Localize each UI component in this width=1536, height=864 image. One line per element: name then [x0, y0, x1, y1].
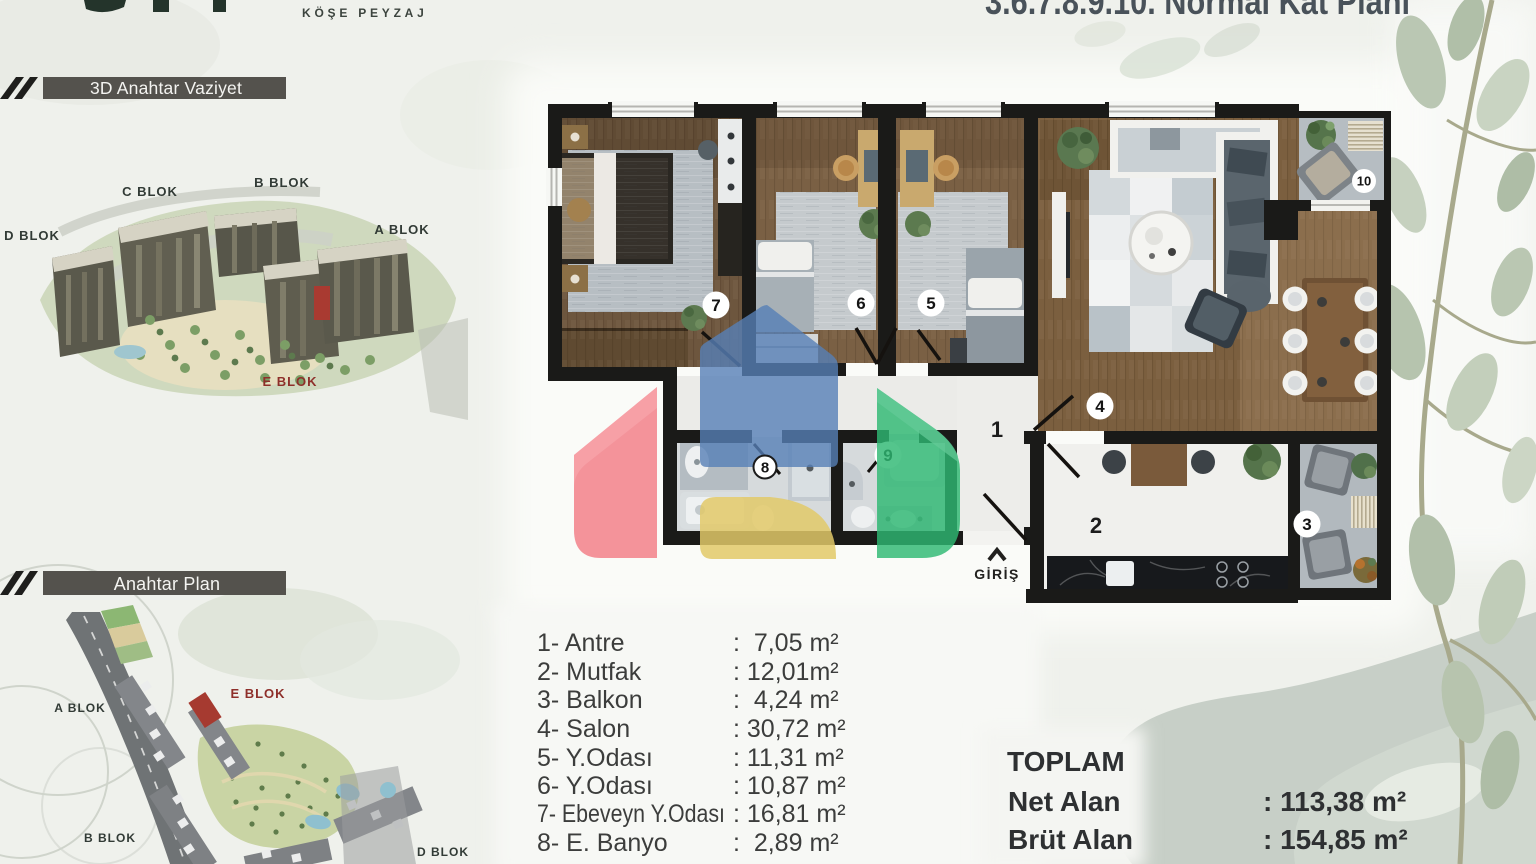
svg-text:B BLOK: B BLOK: [84, 831, 136, 845]
svg-text:C BLOK: C BLOK: [122, 184, 178, 199]
svg-text:B BLOK: B BLOK: [254, 175, 310, 190]
svg-text:7- Ebeveyn Y.Odası: 7- Ebeveyn Y.Odası: [537, 800, 725, 828]
svg-text:4: 4: [1095, 397, 1105, 416]
svg-text:TOPLAM: TOPLAM: [1007, 746, 1125, 777]
svg-text:1: 1: [991, 417, 1003, 442]
svg-text:: 4,50 m²: : 4,50 m²: [733, 860, 839, 864]
svg-text:9- Banyo: 9- Banyo: [537, 860, 637, 864]
svg-text:: 7,05 m²: : 7,05 m²: [733, 629, 839, 657]
svg-text:: 16,81 m²: : 16,81 m²: [733, 800, 846, 828]
svg-text:2: 2: [1090, 513, 1102, 538]
svg-text:8- E. Banyo: 8- E. Banyo: [537, 829, 668, 857]
svg-text:3: 3: [1302, 515, 1311, 534]
svg-text:E BLOK: E BLOK: [230, 686, 285, 701]
svg-text:2- Mutfak: 2- Mutfak: [537, 658, 642, 686]
svg-text:A BLOK: A BLOK: [374, 222, 429, 237]
svg-text:4- Salon: 4- Salon: [537, 715, 630, 743]
svg-text:3- Balkon: 3- Balkon: [537, 686, 643, 714]
svg-text:GİRİŞ: GİRİŞ: [974, 566, 1020, 582]
svg-text:7: 7: [711, 296, 720, 315]
svg-text:: 12,01m²: : 12,01m²: [733, 658, 839, 686]
svg-text:1- Antre: 1- Antre: [537, 629, 625, 657]
svg-text:D BLOK: D BLOK: [4, 228, 60, 243]
svg-text:: 154,85 m²: : 154,85 m²: [1263, 824, 1408, 855]
svg-text:: 4,24 m²: : 4,24 m²: [733, 686, 839, 714]
svg-text:10: 10: [1357, 174, 1371, 189]
svg-text:3.6.7.8.9.10. Normal Kat Planı: 3.6.7.8.9.10. Normal Kat Planı: [985, 0, 1410, 22]
svg-text:: 2,89 m²: : 2,89 m²: [733, 829, 839, 857]
svg-text:: 11,31 m²: : 11,31 m²: [733, 744, 844, 772]
svg-text:E BLOK: E BLOK: [262, 374, 317, 389]
svg-text:: 113,38 m²: : 113,38 m²: [1263, 786, 1406, 817]
svg-text:Net Alan: Net Alan: [1008, 786, 1121, 817]
svg-text:6- Y.Odası: 6- Y.Odası: [537, 772, 653, 800]
svg-text:8: 8: [761, 460, 769, 477]
svg-text:: 30,72 m²: : 30,72 m²: [733, 715, 846, 743]
svg-text:6: 6: [856, 294, 865, 313]
svg-text:Anahtar Plan: Anahtar Plan: [114, 574, 220, 594]
svg-text:D BLOK: D BLOK: [417, 845, 469, 859]
svg-text:5: 5: [926, 294, 935, 313]
svg-text:3D Anahtar Vaziyet: 3D Anahtar Vaziyet: [90, 78, 242, 98]
svg-text:: 10,87 m²: : 10,87 m²: [733, 772, 846, 800]
svg-text:A BLOK: A BLOK: [54, 701, 106, 715]
svg-text:KÖŞE PEYZAJ: KÖŞE PEYZAJ: [302, 5, 427, 20]
svg-text:5- Y.Odası: 5- Y.Odası: [537, 744, 653, 772]
svg-text:Brüt Alan: Brüt Alan: [1008, 824, 1133, 855]
